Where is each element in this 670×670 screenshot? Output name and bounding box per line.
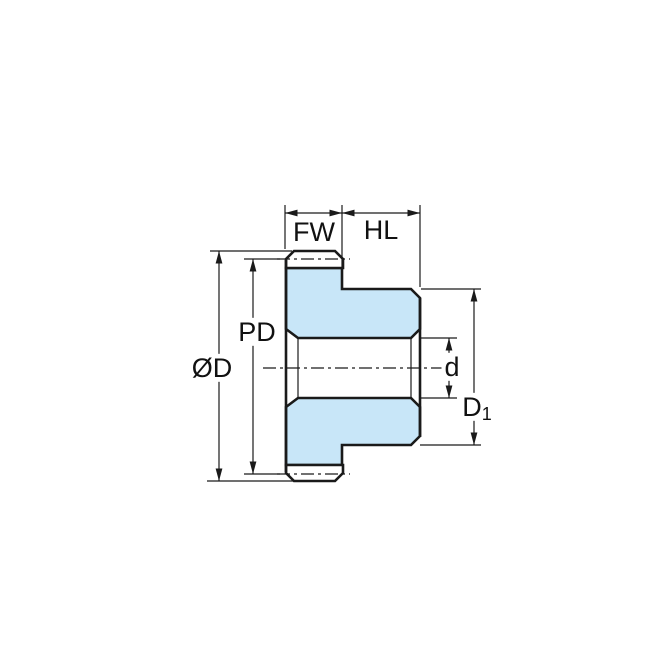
label-bore-diameter: d xyxy=(441,353,462,381)
label-hub-diameter-main: D xyxy=(462,392,482,422)
label-hub-length: HL xyxy=(361,216,402,244)
label-outer-diameter: ØD xyxy=(189,354,236,382)
label-face-width: FW xyxy=(290,218,338,246)
label-hub-diameter-sub: 1 xyxy=(482,404,492,424)
gear-body-lower xyxy=(286,398,420,465)
label-pitch-diameter: PD xyxy=(235,318,279,346)
label-hub-diameter: D1 xyxy=(459,393,495,421)
drawing-canvas xyxy=(0,0,670,670)
tooth-tip-bottom xyxy=(286,465,343,481)
gear-body-upper xyxy=(286,268,420,338)
gear-dimension-diagram: FW HL ØD PD d D1 xyxy=(0,0,670,670)
